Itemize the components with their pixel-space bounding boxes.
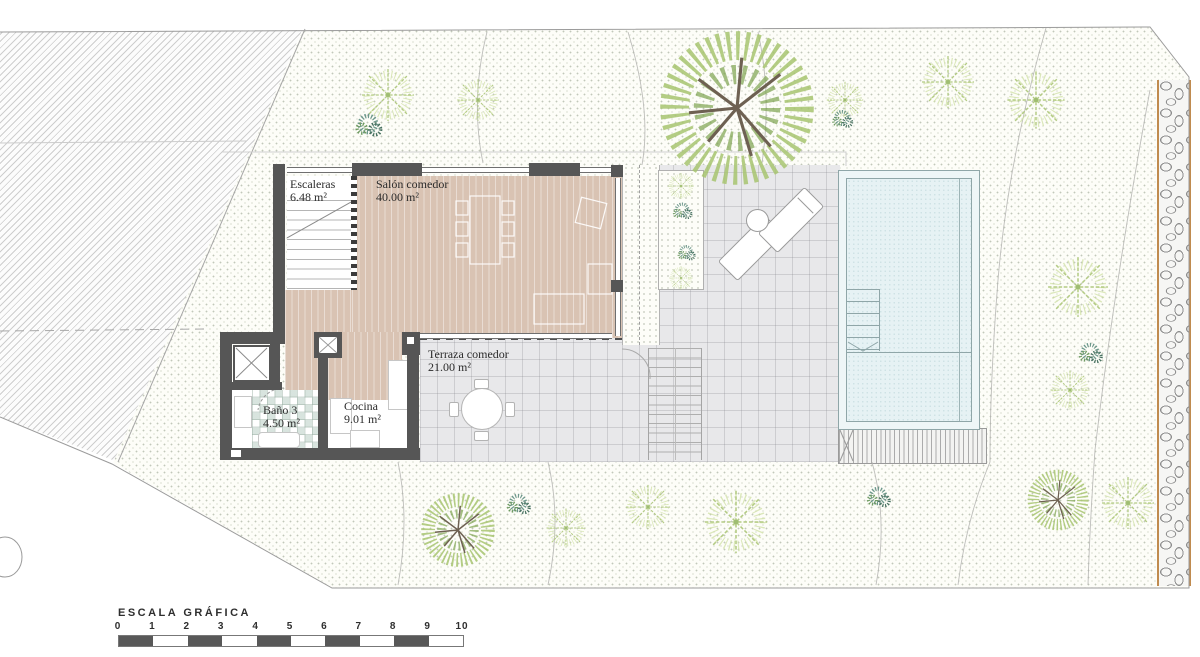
scale-segment (222, 636, 256, 646)
side-table (746, 209, 769, 232)
scale-tick: 4 (252, 621, 259, 632)
scale-tick: 8 (390, 621, 397, 632)
window-glazing (580, 167, 611, 173)
room-label-salon: Salón comedor 40.00 m² (376, 178, 448, 205)
wall (220, 448, 420, 460)
shower-fixture (234, 396, 252, 428)
wall (529, 163, 580, 176)
room-label-bano: Baño 3 4.50 m² (263, 404, 300, 431)
floor-plan-canvas: Escaleras 6.48 m² Salón comedor 40.00 m²… (0, 0, 1200, 657)
scale-tick: 10 (455, 621, 468, 632)
wall (220, 344, 232, 460)
terrace-table (461, 388, 503, 430)
shaft-x-icon (319, 337, 337, 353)
chair (505, 402, 515, 417)
shaft-x-icon (235, 347, 268, 379)
scale-segment (257, 636, 291, 646)
wall (318, 356, 328, 448)
scale-tick: 0 (115, 621, 122, 632)
wall (407, 354, 419, 448)
scale-tick: 7 (356, 621, 363, 632)
room-area: 9.01 m² (344, 412, 381, 426)
room-name: Terraza comedor (428, 347, 509, 361)
scale-tick: 6 (321, 621, 328, 632)
room-area: 4.50 m² (263, 416, 300, 430)
scale-segment (153, 636, 187, 646)
swimming-pool (838, 170, 980, 430)
room-label-terraza: Terraza comedor 21.00 m² (428, 348, 509, 375)
mullion (611, 165, 623, 177)
kitchen-counter (388, 360, 408, 410)
chair (449, 402, 459, 417)
duct-shaft-void (319, 337, 337, 353)
scale-segment (188, 636, 222, 646)
hall-floor (285, 290, 352, 338)
chair (474, 431, 489, 441)
wall (220, 332, 285, 344)
scale-segment (394, 636, 428, 646)
wall-column (231, 450, 241, 457)
stone-wall (1157, 80, 1191, 586)
wall-column (407, 337, 414, 344)
pool-step-arrow-icon (847, 341, 880, 353)
room-label-cocina: Cocina 9.01 m² (344, 400, 381, 427)
vanity-fixture (258, 432, 300, 448)
window-glazing (422, 167, 529, 173)
gravel-strip (622, 165, 660, 345)
room-name: Salón comedor (376, 177, 448, 191)
room-name: Escaleras (290, 177, 335, 191)
slatted-deck (838, 428, 987, 464)
window-glazing (615, 178, 621, 336)
wall (273, 164, 285, 344)
sliding-door (420, 333, 612, 339)
scale-segment (325, 636, 359, 646)
planting-bed (658, 170, 704, 290)
scale-bar (118, 635, 464, 647)
door-swing-icon (620, 348, 652, 382)
window-glazing (287, 167, 352, 173)
scale-tick: 1 (149, 621, 156, 632)
room-area: 6.48 m² (290, 190, 327, 204)
room-area: 21.00 m² (428, 360, 471, 374)
scale-bar-title: ESCALA GRÁFICA (118, 607, 251, 619)
room-name: Baño 3 (263, 403, 297, 417)
wall (270, 344, 280, 384)
elevator-shaft (233, 345, 271, 382)
deck-brace-icon (839, 429, 855, 463)
scale-tick: 5 (287, 621, 294, 632)
stair-screen-wall (351, 176, 357, 290)
exterior-stairs (648, 348, 702, 460)
room-name: Cocina (344, 399, 378, 413)
kitchen-counter (350, 430, 380, 448)
scale-segment (429, 636, 463, 646)
scale-tick: 2 (184, 621, 191, 632)
scale-segment (119, 636, 153, 646)
scale-segment (360, 636, 394, 646)
mullion (611, 280, 623, 292)
room-label-escaleras: Escaleras 6.48 m² (290, 178, 335, 205)
scale-segment (291, 636, 325, 646)
room-area: 40.00 m² (376, 190, 419, 204)
wall (352, 163, 422, 176)
scale-tick: 3 (218, 621, 225, 632)
scale-tick: 9 (424, 621, 431, 632)
